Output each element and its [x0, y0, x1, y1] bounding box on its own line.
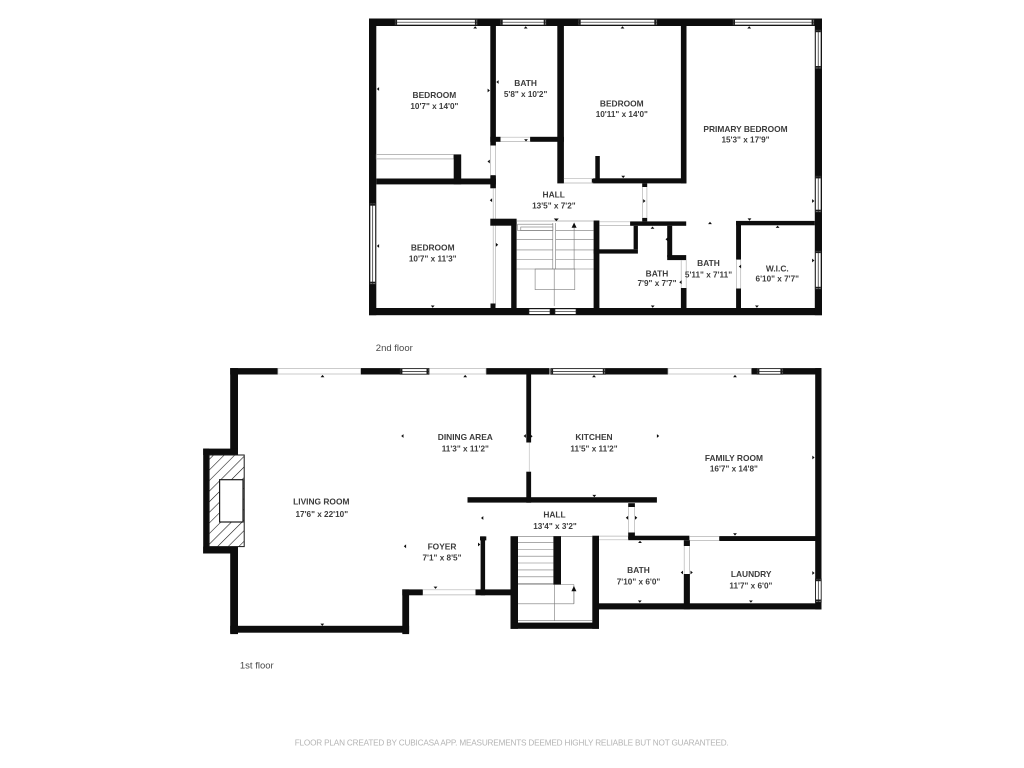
svg-text:PRIMARY BEDROOM: PRIMARY BEDROOM	[703, 124, 787, 134]
svg-text:13'4" x 3'2": 13'4" x 3'2"	[533, 522, 577, 531]
svg-text:10'11" x 14'0": 10'11" x 14'0"	[596, 110, 648, 119]
svg-text:BATH: BATH	[514, 78, 537, 88]
svg-text:DINING AREA: DINING AREA	[438, 432, 493, 442]
svg-text:FAMILY ROOM: FAMILY ROOM	[705, 453, 763, 463]
svg-text:2nd floor: 2nd floor	[376, 343, 413, 354]
svg-text:HALL: HALL	[543, 189, 565, 199]
svg-text:15'3" x 17'9": 15'3" x 17'9"	[721, 136, 769, 145]
svg-text:13'5" x 7'2": 13'5" x 7'2"	[532, 202, 576, 211]
svg-text:17'6" x 22'10": 17'6" x 22'10"	[295, 510, 348, 519]
svg-text:BEDROOM: BEDROOM	[411, 243, 455, 253]
svg-text:BEDROOM: BEDROOM	[413, 90, 457, 100]
svg-text:10'7" x 11'3": 10'7" x 11'3"	[409, 254, 457, 263]
svg-text:FOYER: FOYER	[428, 542, 457, 552]
svg-text:11'7" x 6'0": 11'7" x 6'0"	[729, 582, 772, 591]
svg-text:BATH: BATH	[697, 258, 720, 268]
svg-text:5'11" x 7'11": 5'11" x 7'11"	[685, 271, 732, 280]
svg-text:7'10" x 6'0": 7'10" x 6'0"	[617, 578, 661, 587]
svg-text:1st floor: 1st floor	[240, 661, 274, 672]
svg-text:KITCHEN: KITCHEN	[575, 432, 612, 442]
svg-text:7'9" x 7'7": 7'9" x 7'7"	[638, 279, 677, 288]
svg-text:BATH: BATH	[646, 268, 669, 278]
svg-text:LIVING ROOM: LIVING ROOM	[293, 496, 349, 506]
svg-text:6'10" x 7'7": 6'10" x 7'7"	[756, 274, 800, 283]
svg-text:FLOOR PLAN CREATED BY CUBICASA: FLOOR PLAN CREATED BY CUBICASA APP. MEAS…	[295, 738, 729, 747]
svg-text:5'8" x 10'2": 5'8" x 10'2"	[504, 90, 548, 99]
svg-text:BATH: BATH	[627, 565, 650, 575]
svg-text:W.I.C.: W.I.C.	[766, 264, 789, 274]
svg-text:HALL: HALL	[543, 510, 565, 520]
svg-text:7'1" x 8'5": 7'1" x 8'5"	[423, 554, 462, 563]
svg-text:LAUNDRY: LAUNDRY	[731, 569, 772, 579]
svg-text:16'7" x 14'8": 16'7" x 14'8"	[710, 465, 758, 474]
svg-text:11'3" x 11'2": 11'3" x 11'2"	[442, 444, 489, 453]
svg-text:11'5" x 11'2": 11'5" x 11'2"	[570, 444, 617, 453]
svg-text:BEDROOM: BEDROOM	[600, 98, 644, 108]
svg-text:10'7" x 14'0": 10'7" x 14'0"	[410, 102, 458, 111]
